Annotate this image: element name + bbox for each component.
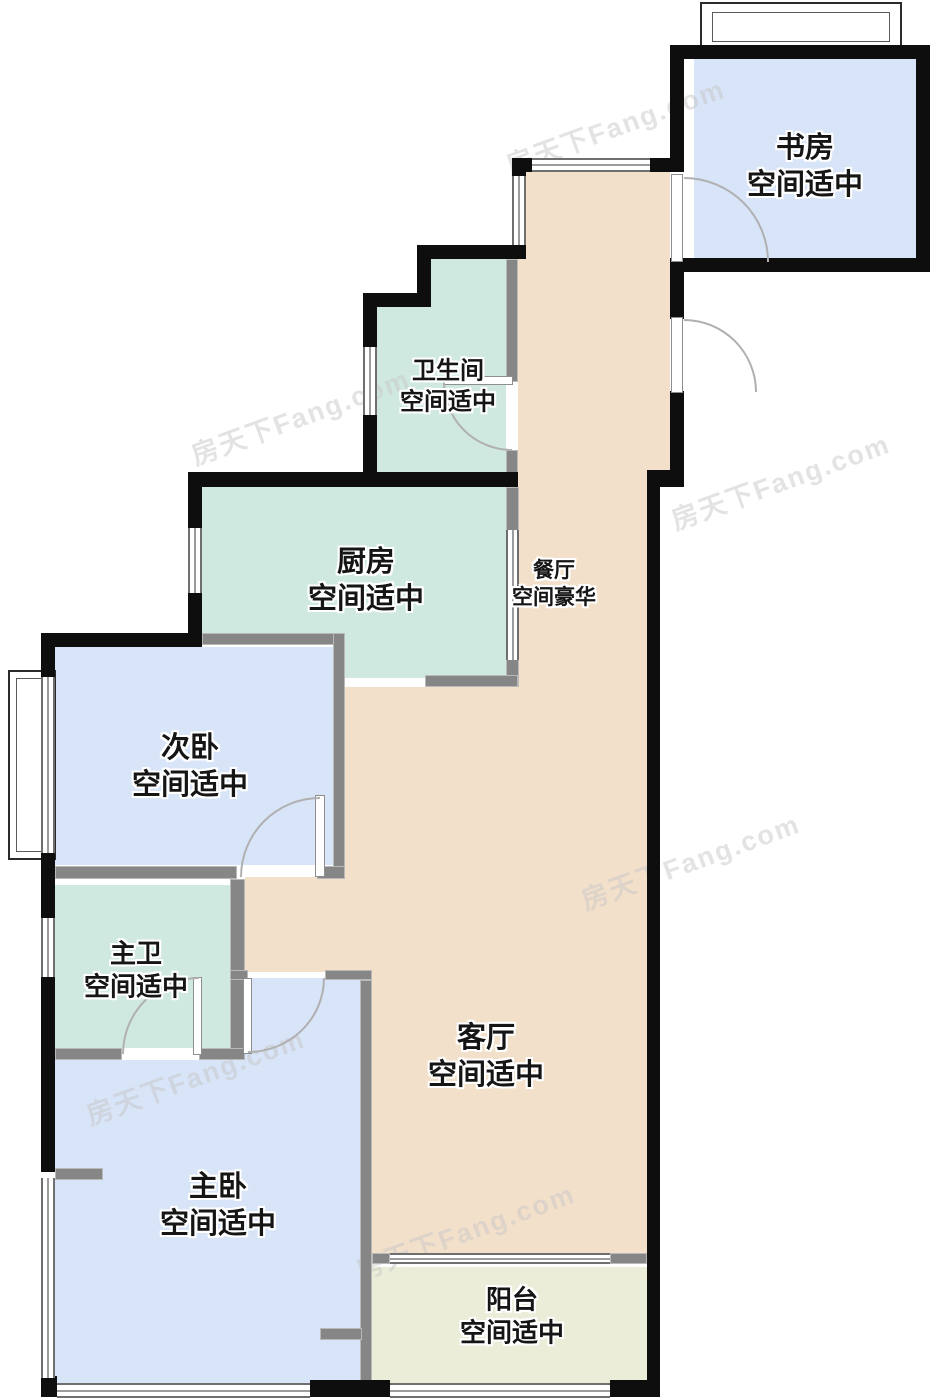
- wall-segment: [506, 259, 518, 382]
- room-label-kitchen: 厨房 空间适中: [308, 544, 424, 618]
- room-name: 餐厅: [512, 558, 596, 585]
- wall-segment: [55, 1168, 103, 1180]
- room-grade: 空间豪华: [512, 585, 596, 612]
- door-leaf-entry: [671, 317, 683, 393]
- wall-segment: [325, 970, 372, 980]
- wall-segment: [670, 391, 684, 478]
- watermark-text: 房天下Fang.com: [665, 422, 895, 537]
- room-grade: 空间适中: [132, 767, 248, 804]
- room-name: 主卫: [84, 938, 188, 971]
- window-master-bathroom-left: [41, 918, 55, 977]
- room-grade: 空间适中: [308, 581, 424, 618]
- room-grade: 空间适中: [747, 167, 863, 204]
- room-grade: 空间适中: [460, 1317, 564, 1350]
- room-label-second-bedroom: 次卧 空间适中: [132, 730, 248, 804]
- wall-segment: [506, 450, 518, 474]
- room-label-study: 书房 空间适中: [747, 130, 863, 204]
- window-second-bedroom-left: [41, 677, 55, 853]
- window-kitchen-left: [188, 528, 202, 593]
- wall-segment: [188, 472, 518, 487]
- room-name: 次卧: [132, 730, 248, 767]
- wall-segment: [425, 675, 518, 687]
- room-kitchen-fill: [345, 633, 506, 678]
- slider-living-balcony: [390, 1253, 610, 1264]
- wall-segment: [310, 1380, 390, 1397]
- wall-segment: [648, 158, 684, 172]
- wall-segment: [372, 1253, 390, 1264]
- room-name: 书房: [747, 130, 863, 167]
- window-balcony-bottom: [390, 1383, 610, 1398]
- room-grade: 空间适中: [428, 1057, 544, 1094]
- wall-segment: [41, 1060, 55, 1172]
- room-label-dining: 餐厅 空间豪华: [512, 558, 596, 612]
- room-label-balcony: 阳台 空间适中: [460, 1284, 564, 1351]
- wall-segment: [670, 45, 684, 172]
- room-grade: 空间适中: [160, 1206, 276, 1243]
- wall-segment: [199, 1048, 245, 1060]
- hallway-fill: [345, 687, 647, 877]
- room-name: 厨房: [308, 544, 424, 581]
- wall-segment: [916, 45, 930, 272]
- wall-segment: [333, 633, 345, 879]
- wall-segment: [41, 877, 55, 920]
- wall-segment: [417, 245, 526, 259]
- wall-segment: [506, 487, 519, 532]
- wall-segment: [610, 1253, 647, 1264]
- room-label-bathroom: 卫生间 空间适中: [400, 356, 496, 417]
- room-label-living: 客厅 空间适中: [428, 1020, 544, 1094]
- wall-segment: [41, 975, 55, 1060]
- room-dining-fill: [518, 250, 670, 478]
- wall-segment: [202, 633, 345, 645]
- door-arc-entry: [684, 319, 757, 392]
- window-dining-top: [532, 158, 650, 172]
- wall-segment: [670, 272, 684, 319]
- wall-segment: [680, 45, 930, 59]
- wall-segment: [41, 633, 202, 647]
- room-name: 阳台: [460, 1284, 564, 1317]
- door-leaf-study: [671, 174, 683, 262]
- room-label-master-bathroom: 主卫 空间适中: [84, 938, 188, 1005]
- room-bathroom-fill: [431, 259, 506, 311]
- window-bathroom-left: [363, 347, 377, 415]
- wall-segment: [320, 1328, 362, 1340]
- wall-segment: [363, 293, 377, 349]
- wall-segment: [55, 866, 237, 879]
- window-master-bedroom-bottom: [57, 1383, 310, 1398]
- room-name: 卫生间: [400, 356, 496, 387]
- room-name: 主卧: [160, 1169, 276, 1206]
- wall-segment: [188, 472, 202, 530]
- wall-segment: [647, 470, 684, 487]
- wall-segment: [647, 478, 660, 1397]
- room-name: 客厅: [428, 1020, 544, 1057]
- floor-plan: 房天下Fang.com 房天下Fang.com 房天下Fang.com 房天下F…: [0, 0, 936, 1400]
- room-label-master-bedroom: 主卧 空间适中: [160, 1169, 276, 1243]
- room-grade: 空间适中: [84, 971, 188, 1004]
- wall-segment: [41, 853, 55, 879]
- room-grade: 空间适中: [400, 387, 496, 418]
- window-dining-left: [512, 176, 526, 245]
- wall-segment: [55, 1048, 122, 1060]
- window-master-bedroom-left: [41, 1178, 55, 1378]
- study-bay-window-inner: [712, 12, 890, 42]
- room-dining-fill: [526, 172, 670, 252]
- wall-segment: [41, 633, 55, 677]
- wall-segment: [41, 1376, 57, 1397]
